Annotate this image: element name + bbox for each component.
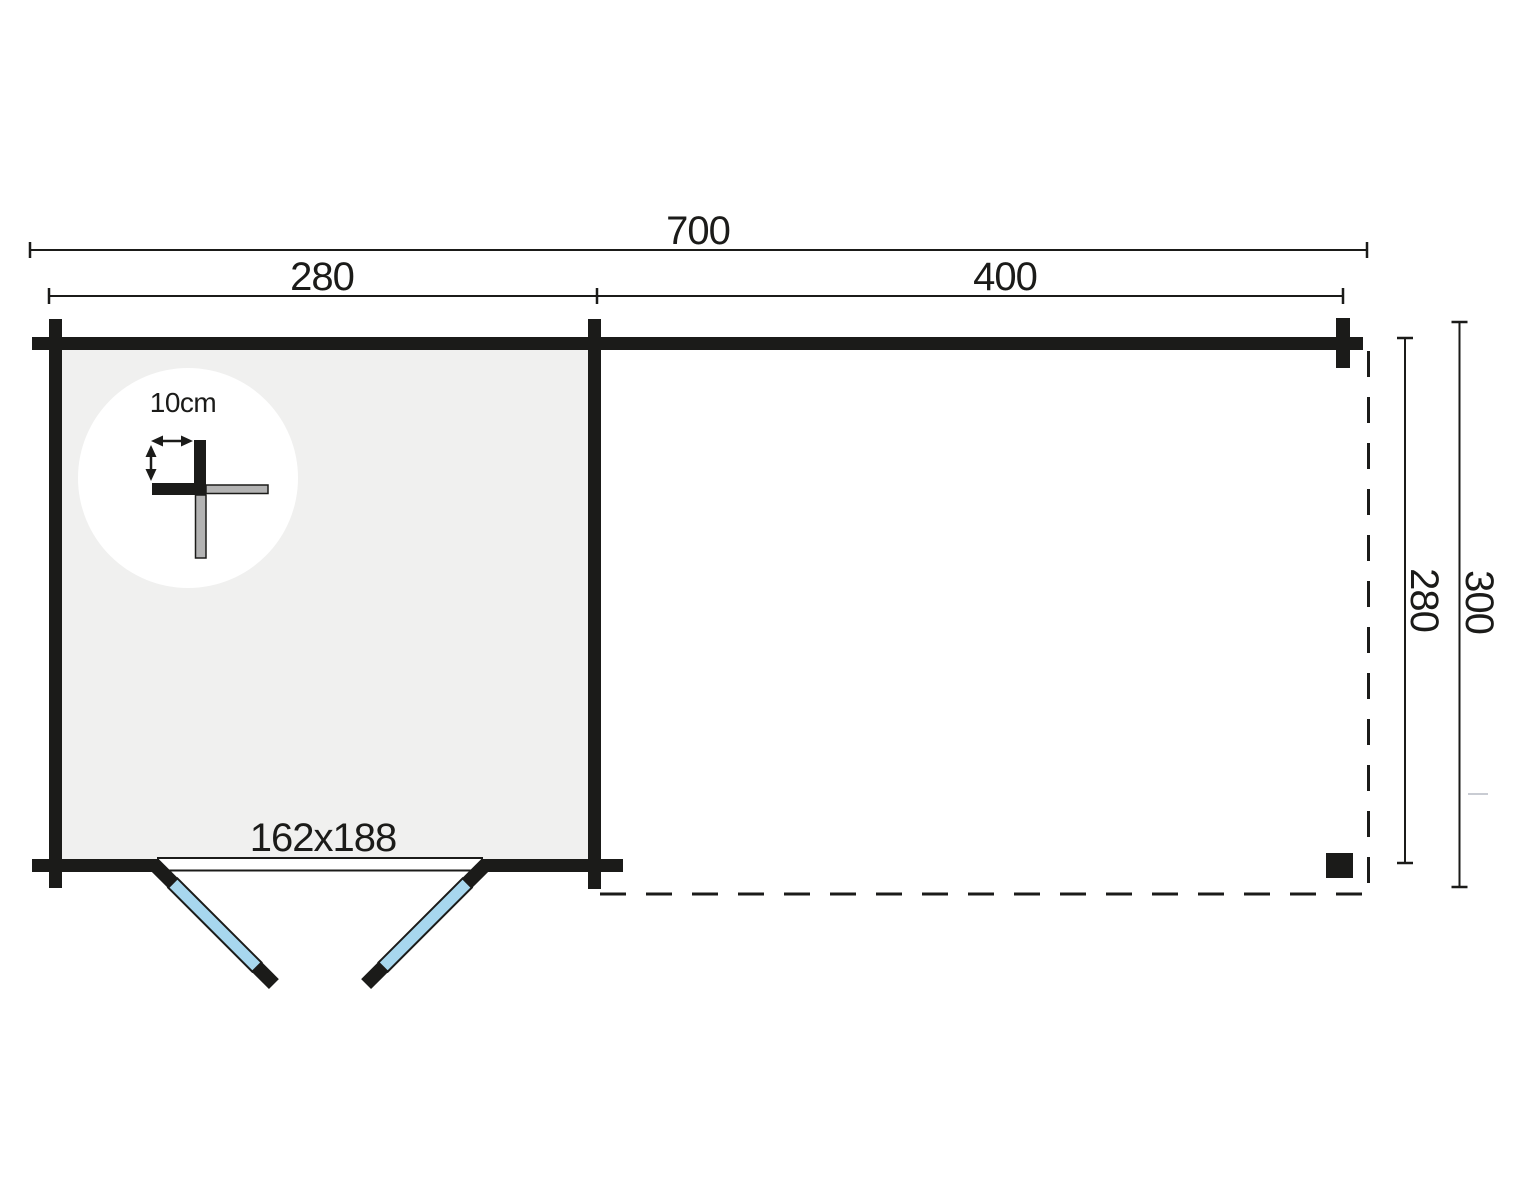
floor-plan-drawing (0, 0, 1530, 1188)
canopy-corner-post (1326, 853, 1353, 878)
door-leaf-left (149, 859, 279, 989)
wall-thickness-label: 10cm (150, 389, 216, 417)
dim-outer-depth-label: 300 (1459, 570, 1499, 634)
door-leaf-left-panel (168, 878, 261, 971)
dim-annex-width-label: 400 (973, 257, 1037, 297)
dim-inner-depth-label: 280 (1404, 568, 1444, 632)
dimension-line-annex-width (597, 288, 1343, 304)
floor-plan-canvas: 700 280 400 280 300 162x188 10cm (0, 0, 1530, 1188)
front-wall (32, 337, 1363, 350)
partition-wall (588, 319, 601, 889)
front-wall-end-tick (1336, 318, 1350, 368)
door-leaf-right-panel (378, 878, 471, 971)
dim-cabin-width-label: 280 (290, 257, 354, 297)
door-leaf-right (361, 859, 491, 989)
door-size-label: 162x188 (250, 818, 396, 858)
detail-log-end-bottom (196, 495, 207, 558)
detail-log-end-right (206, 485, 268, 494)
rear-wall-right-segment (482, 859, 623, 872)
rear-wall-left-segment (32, 859, 158, 872)
left-wall (49, 319, 62, 888)
detail-wall-horizontal (152, 483, 206, 495)
dim-total-width-label: 700 (666, 211, 730, 251)
